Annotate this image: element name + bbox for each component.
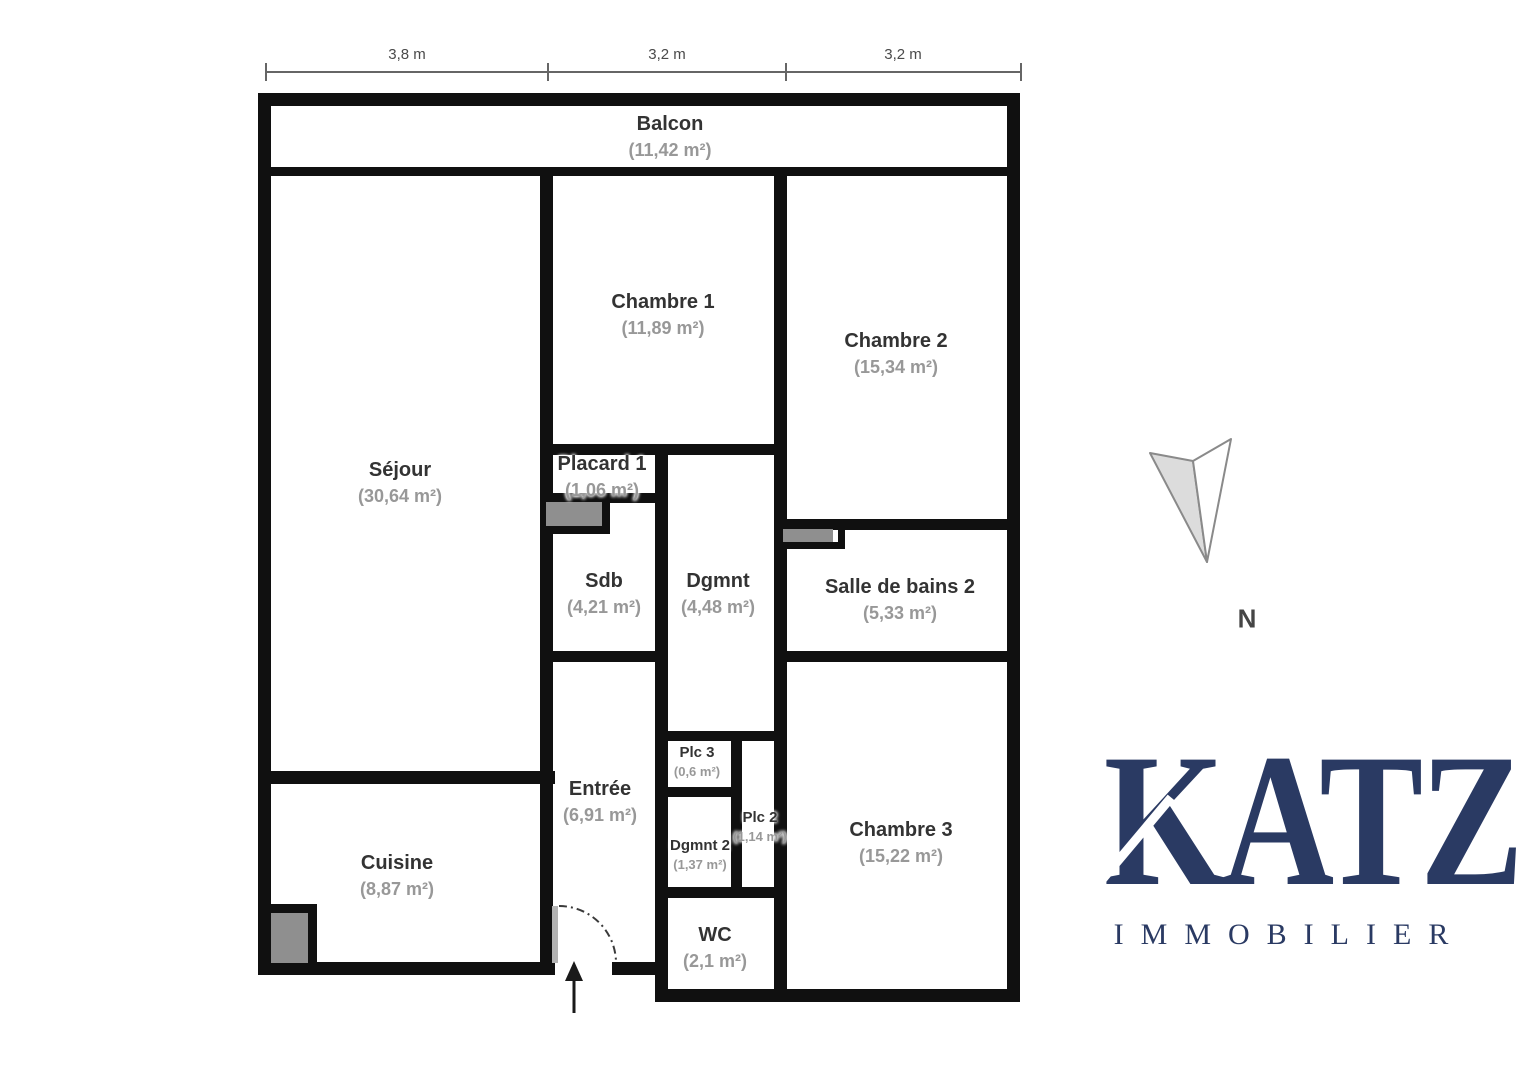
room-label-sdb: Sdb (4,21 m²): [567, 568, 641, 620]
room-label-plc2: Plc 2 (1,14 m²): [733, 808, 786, 846]
room-label-sdb2: Salle de bains 2 (5,33 m²): [825, 574, 975, 626]
room-name: Séjour: [358, 457, 442, 483]
room-label-dgmnt: Dgmnt (4,48 m²): [681, 568, 755, 620]
room-area: (30,64 m²): [358, 483, 442, 509]
wall-bottom-left: [258, 962, 555, 975]
room-area: (6,91 m²): [563, 802, 637, 828]
room-name: Plc 2: [733, 808, 786, 827]
appliance-cuisine: [271, 913, 308, 963]
room-name: WC: [683, 922, 747, 948]
dimension-label-3: 3,2 m: [884, 46, 922, 63]
room-name: Salle de bains 2: [825, 574, 975, 600]
room-label-chambre1: Chambre 1 (11,89 m²): [611, 289, 714, 341]
wall-sejour-divider: [540, 167, 553, 975]
wall-main-vertical: [774, 167, 787, 1002]
dimension-line: [266, 63, 1021, 81]
shelf-fixture-sdb2-border-r: [838, 519, 845, 549]
dimension-label-1: 3,8 m: [388, 46, 426, 63]
agency-logo: KATZ IMMOBILIER: [1058, 726, 1504, 952]
room-label-plc3: Plc 3 (0,6 m²): [674, 743, 720, 781]
wall-outer-top: [258, 93, 1020, 106]
wall-bottom-right: [655, 989, 1020, 1002]
door-swing-arc: [559, 906, 616, 963]
room-area: (1,06 m²): [558, 477, 647, 503]
shelf-fixture-sdb2-border-b: [783, 542, 845, 549]
shower-fixture-sdb-border-r: [602, 502, 610, 534]
wall-sdb-bottom: [540, 651, 668, 662]
room-area: (11,42 m²): [628, 137, 711, 163]
floor-plan-canvas: 3,8 m 3,2 m 3,2 m N Balcon (11,42 m²) Sé…: [0, 0, 1528, 1080]
wall-plc3-bottom: [655, 787, 742, 797]
room-label-cuisine: Cuisine (8,87 m²): [360, 850, 434, 902]
room-name: Balcon: [628, 111, 711, 137]
agency-logo-wordmark: KATZ: [1104, 726, 1521, 916]
room-area: (15,22 m²): [849, 843, 952, 869]
shelf-fixture-sdb2: [783, 529, 833, 542]
room-area: (2,1 m²): [683, 948, 747, 974]
room-name: Sdb: [567, 568, 641, 594]
shower-fixture-sdb-border-b: [546, 526, 610, 534]
wall-outer-left: [258, 93, 271, 975]
room-label-chambre2: Chambre 2 (15,34 m²): [844, 328, 947, 380]
room-label-dgmnt2: Dgmnt 2 (1,37 m²): [670, 836, 730, 874]
room-label-wc: WC (2,1 m²): [683, 922, 747, 974]
wall-sdb2-bottom: [774, 651, 1020, 662]
entrance-door-leaf: [552, 906, 558, 963]
room-label-chambre3: Chambre 3 (15,22 m²): [849, 817, 952, 869]
wall-outer-right: [1007, 93, 1020, 1002]
room-area: (11,89 m²): [611, 315, 714, 341]
room-area: (4,48 m²): [681, 594, 755, 620]
room-label-entree: Entrée (6,91 m²): [563, 776, 637, 828]
entrance-arrow: [565, 961, 583, 1013]
wall-wc-top: [655, 887, 787, 898]
room-name: Plc 3: [674, 743, 720, 762]
room-area: (0,6 m²): [674, 762, 720, 781]
room-area: (4,21 m²): [567, 594, 641, 620]
room-name: Entrée: [563, 776, 637, 802]
appliance-cuisine-border-r: [308, 904, 317, 963]
room-area: (1,37 m²): [670, 855, 730, 874]
room-name: Dgmnt: [681, 568, 755, 594]
wall-plc3-top: [655, 731, 787, 741]
wall-balcony-bottom: [266, 167, 1014, 176]
room-area: (15,34 m²): [844, 354, 947, 380]
room-name: Chambre 2: [844, 328, 947, 354]
room-label-sejour: Séjour (30,64 m²): [358, 457, 442, 509]
room-name: Chambre 3: [849, 817, 952, 843]
room-label-balcon: Balcon (11,42 m²): [628, 111, 711, 163]
room-name: Cuisine: [360, 850, 434, 876]
room-area: (8,87 m²): [360, 876, 434, 902]
dimension-label-2: 3,2 m: [648, 46, 686, 63]
north-arrow-icon: [1150, 439, 1231, 562]
room-name: Dgmnt 2: [670, 836, 730, 855]
north-label: N: [1238, 604, 1257, 635]
room-area: (1,14 m²): [733, 827, 786, 846]
room-name: Placard 1: [558, 451, 647, 477]
room-area: (5,33 m²): [825, 600, 975, 626]
shower-fixture-sdb: [546, 502, 602, 526]
room-label-placard1: Placard 1 (1,06 m²): [558, 451, 647, 503]
wall-cuisine-top: [258, 771, 555, 784]
room-name: Chambre 1: [611, 289, 714, 315]
wall-mid-vertical: [655, 444, 668, 1002]
